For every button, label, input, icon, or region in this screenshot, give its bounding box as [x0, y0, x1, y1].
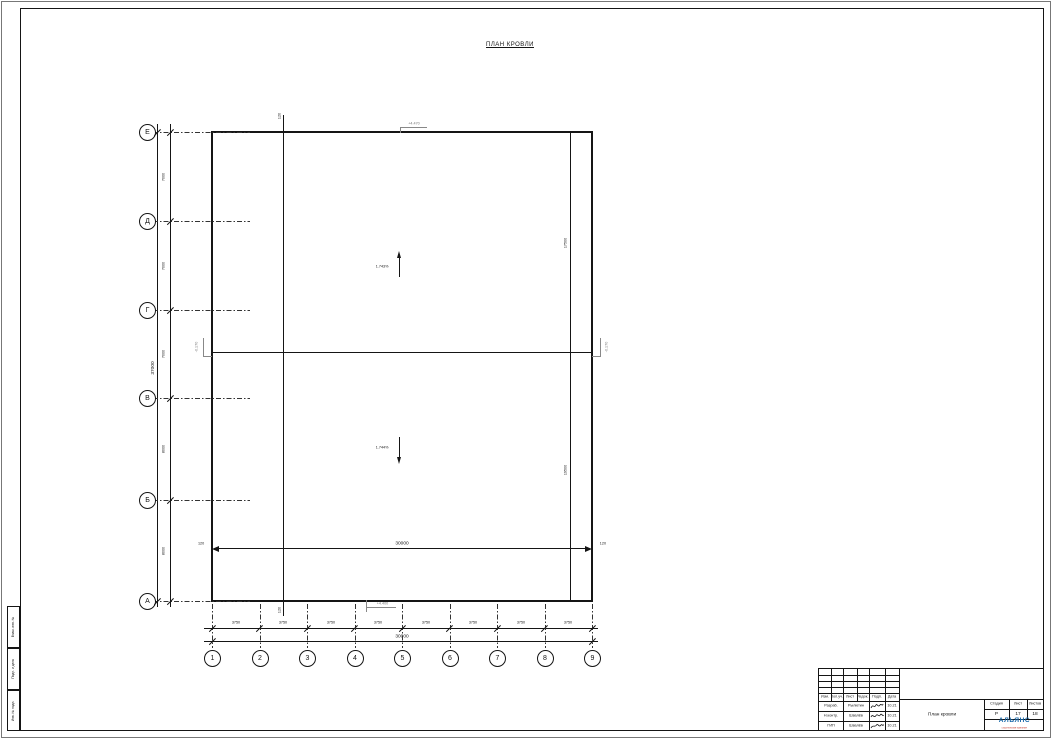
axis-bubble-bottom-1: 1 — [204, 650, 221, 667]
dim-label-bottom: 3750 — [417, 621, 434, 626]
ridge-mark-left-leader-h — [203, 356, 212, 357]
parapet-dim-top: 120 — [276, 111, 285, 121]
roof-line-left — [283, 115, 284, 616]
signature — [870, 722, 884, 730]
rev-header-data: Дата — [888, 695, 897, 700]
titleblock-line — [819, 675, 899, 676]
dim-label-bottom: 3750 — [370, 621, 387, 626]
axis-bubble-left-Д: Д — [139, 213, 156, 230]
dim-label-bottom: 3750 — [560, 621, 577, 626]
left-dim-chain — [170, 124, 171, 607]
row-name: Швалёв — [848, 724, 864, 729]
ridge-line — [213, 352, 591, 353]
axis-bubble-left-Г: Г — [139, 302, 156, 319]
ridge-mark-right-leader-h — [592, 356, 601, 357]
sheets-value: 18 — [1029, 710, 1042, 718]
ridge-mark-left-label: -0.170 — [193, 341, 200, 352]
row-role: Н.контр. — [824, 714, 839, 719]
axis-bubble-bottom-5: 5 — [394, 650, 411, 667]
axis-bubble-left-Е: Е — [139, 124, 156, 141]
title-block: Изм. Кол.уч. Лист №док. Подп. Дата Разра… — [818, 668, 1044, 731]
slope-lower-arrow-line — [399, 437, 400, 457]
level-top-leader-v — [400, 127, 401, 133]
drawing-title: ПЛАН КРОВЛИ — [455, 40, 565, 50]
dim-label-left: 8000 — [160, 542, 167, 559]
dim-label-left: 7000 — [160, 345, 167, 362]
ridge-mark-right-leader-v — [600, 338, 601, 356]
row-date: 10.21 — [888, 714, 897, 719]
rev-header-ndok: №док. — [859, 695, 866, 700]
dim-label-bottom: 3750 — [512, 621, 529, 626]
slope-upper-arrow-line — [399, 257, 400, 277]
dim-label-bottom: 3750 — [275, 621, 292, 626]
titleblock-line — [819, 681, 899, 682]
company-logo: АЛЬЯНС строительная компания — [984, 719, 1043, 730]
row-role: ГИП — [824, 724, 839, 729]
company-name: АЛЬЯНС — [999, 718, 1030, 725]
right-dim-upper: 17500 — [562, 234, 569, 253]
dim-label-left: 7000 — [160, 168, 167, 185]
titleblock-line — [819, 721, 899, 722]
axis-bubble-bottom-3: 3 — [299, 650, 316, 667]
right-dim-lower: 19500 — [562, 461, 569, 480]
axis-bubble-left-В: В — [139, 390, 156, 407]
titleblock-line — [819, 687, 899, 688]
axis-bubble-bottom-8: 8 — [537, 650, 554, 667]
company-subtitle: строительная компания — [1002, 727, 1027, 729]
ridge-mark-right-label: -0.170 — [603, 341, 610, 352]
level-bottom-leader-v — [366, 600, 367, 612]
dim-label-bottom: 3750 — [322, 621, 339, 626]
dim-label-left: 8000 — [160, 440, 167, 457]
level-top-label: +4.470 — [406, 121, 422, 125]
stage-header: Стадия — [989, 701, 1005, 707]
rev-header-izm: Изм. — [821, 695, 828, 700]
axis-bubble-bottom-6: 6 — [442, 650, 459, 667]
titleblock-drawing-name: План кровли — [908, 702, 975, 727]
inner-dim-center-label: 30000 — [388, 540, 417, 547]
dim-label-left: 7000 — [160, 257, 167, 274]
titleblock-line — [819, 701, 899, 702]
row-role: Разраб. — [824, 704, 839, 709]
sheet-header: Лист — [1012, 701, 1023, 707]
slope-lower-arrowhead — [397, 457, 401, 464]
axis-bubble-bottom-2: 2 — [252, 650, 269, 667]
signature — [870, 712, 884, 720]
signature — [870, 702, 884, 710]
rev-header-kol: Кол.уч. — [833, 695, 840, 700]
inner-dim-line — [219, 548, 585, 549]
inner-dim-left-label: 120 — [192, 542, 204, 547]
building-outline — [211, 131, 593, 602]
inner-dim-right-label: 120 — [600, 542, 612, 547]
slope-upper-label: 1.743% — [364, 264, 389, 270]
ridge-mark-left-leader-v — [203, 338, 204, 356]
axis-bubble-left-А: А — [139, 593, 156, 610]
axis-bubble-left-Б: Б — [139, 492, 156, 509]
bottom-total-chain — [204, 641, 598, 642]
axis-bubble-bottom-9: 9 — [584, 650, 601, 667]
slope-lower-label: 1.744% — [364, 445, 389, 451]
row-name: Рылютин — [848, 704, 864, 709]
titleblock-line — [899, 699, 1043, 700]
rev-header-list: Лист — [846, 695, 855, 700]
parapet-dim-bottom: 120 — [276, 605, 285, 615]
axis-bubble-bottom-7: 7 — [489, 650, 506, 667]
rev-header-podp: Подп. — [872, 695, 882, 700]
dim-arrow-left — [212, 546, 219, 552]
dim-label-bottom: 3750 — [227, 621, 244, 626]
dim-label-bottom: 3750 — [465, 621, 482, 626]
slope-upper-arrowhead — [397, 251, 401, 258]
level-top-leader-h — [400, 127, 427, 128]
row-name: Швалёв — [848, 714, 864, 719]
left-total-label: 37000 — [148, 354, 158, 383]
titleblock-line — [819, 711, 899, 712]
roof-line-right — [570, 133, 571, 600]
sheets-header: Листов — [1030, 701, 1040, 707]
level-bottom-leader-h — [366, 607, 396, 608]
row-date: 10.21 — [888, 704, 897, 709]
roof-plan-drawing: ПЛАН КРОВЛИ 120 30000 120 37000 30000 17… — [0, 0, 1053, 740]
axis-bubble-bottom-4: 4 — [347, 650, 364, 667]
logo-text-stack: АЛЬЯНС строительная компания — [981, 718, 1047, 731]
level-bottom-label: +4.400 — [374, 601, 391, 605]
dim-arrow-right — [585, 546, 592, 552]
row-date: 10.21 — [888, 724, 897, 729]
